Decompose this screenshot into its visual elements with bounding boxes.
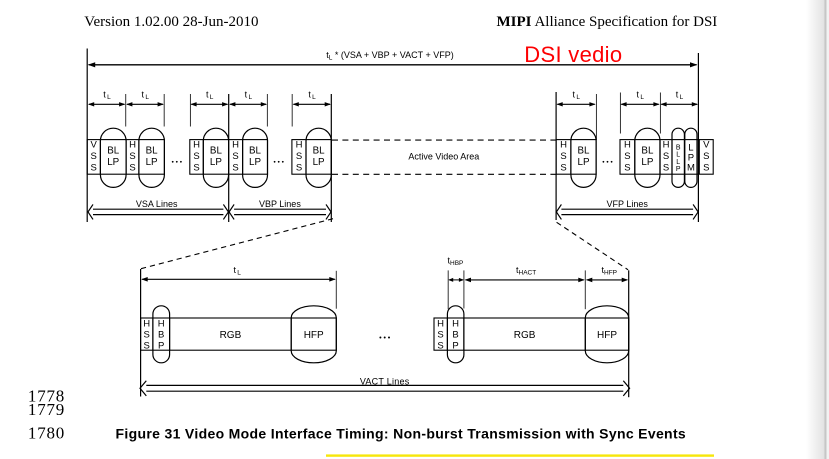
svg-text:LP: LP [146, 157, 158, 168]
svg-text:S: S [560, 163, 566, 174]
svg-text:V: V [91, 140, 98, 151]
svg-text:t: t [573, 90, 576, 100]
svg-text:t: t [103, 90, 106, 100]
svg-text:S: S [193, 163, 199, 174]
svg-text:S: S [232, 151, 238, 162]
svg-text:H: H [193, 140, 200, 151]
svg-text:S: S [91, 163, 97, 174]
svg-text:H: H [296, 140, 303, 151]
svg-text:L: L [145, 94, 149, 101]
svg-text:M: M [687, 163, 695, 174]
svg-text:L: L [576, 94, 580, 101]
svg-text:B: B [676, 144, 681, 151]
svg-text:LP: LP [313, 157, 325, 168]
svg-text:S: S [703, 163, 709, 174]
svg-text:t: t [206, 90, 209, 100]
svg-text:BL: BL [578, 145, 591, 156]
svg-text:H: H [452, 319, 459, 330]
svg-text:VSA Lines: VSA Lines [136, 199, 178, 209]
svg-text:S: S [703, 151, 709, 162]
svg-text:BL: BL [107, 145, 120, 156]
svg-text:H: H [158, 319, 165, 330]
svg-text:S: S [560, 151, 566, 162]
svg-text:LP: LP [578, 157, 590, 168]
svg-text:P: P [676, 166, 681, 173]
svg-text:L: L [680, 94, 684, 101]
svg-text:S: S [663, 163, 669, 174]
svg-text:t: t [245, 90, 248, 100]
svg-text:RGB: RGB [220, 330, 242, 341]
svg-text:L: L [107, 94, 111, 101]
svg-text:BL: BL [313, 145, 326, 156]
svg-text:Active Video Area: Active Video Area [408, 151, 479, 161]
svg-text:HFP: HFP [304, 330, 324, 341]
svg-text:B: B [158, 329, 164, 340]
svg-text:BL: BL [641, 145, 654, 156]
svg-text:VBP Lines: VBP Lines [259, 199, 301, 209]
svg-text:L: L [676, 152, 680, 159]
svg-text:t: t [676, 90, 679, 100]
svg-text:P: P [452, 340, 458, 351]
svg-text:LP: LP [107, 157, 119, 168]
svg-text:P: P [158, 340, 164, 351]
svg-text:H: H [232, 140, 239, 151]
svg-text:H: H [143, 319, 150, 330]
svg-text:S: S [624, 163, 630, 174]
svg-text:tL * (VSA + VBP + VACT + VFP): tL * (VSA + VBP + VACT + VFP) [326, 50, 453, 62]
svg-text:S: S [624, 151, 630, 162]
svg-text:LP: LP [249, 157, 261, 168]
svg-text:L: L [237, 270, 241, 277]
svg-text:BL: BL [249, 145, 262, 156]
svg-text:H: H [624, 140, 631, 151]
svg-text:BL: BL [210, 145, 223, 156]
svg-text:t: t [233, 265, 236, 275]
svg-text:L: L [249, 94, 253, 101]
svg-text:S: S [144, 329, 150, 340]
svg-text:tHBP: tHBP [448, 255, 464, 267]
svg-text:VFP Lines: VFP Lines [607, 199, 649, 209]
svg-text:H: H [129, 140, 136, 151]
svg-text:L: L [312, 94, 316, 101]
svg-text:S: S [129, 151, 135, 162]
svg-text:S: S [232, 163, 238, 174]
svg-text:Figure 31 Video Mode Interface: Figure 31 Video Mode Interface Timing: N… [116, 425, 687, 441]
svg-text:S: S [91, 151, 97, 162]
svg-text:S: S [129, 163, 135, 174]
svg-text:S: S [437, 340, 443, 351]
svg-text:H: H [560, 140, 567, 151]
svg-text:L: L [640, 94, 644, 101]
svg-text:HFP: HFP [597, 330, 617, 341]
svg-text:H: H [437, 319, 444, 330]
svg-text:L: L [210, 94, 214, 101]
svg-text:tHFP: tHFP [602, 265, 618, 277]
svg-text:MIPI Alliance Specification fo: MIPI Alliance Specification for DSI [497, 14, 718, 30]
svg-text:DSI vedio: DSI vedio [524, 42, 622, 67]
svg-text:tHACT: tHACT [516, 265, 536, 277]
svg-text:LP: LP [210, 157, 222, 168]
svg-text:t: t [637, 90, 640, 100]
svg-text:S: S [437, 329, 443, 340]
svg-text:H: H [663, 140, 670, 151]
svg-text:BL: BL [146, 145, 159, 156]
svg-text:1780: 1780 [28, 424, 65, 443]
svg-text:V: V [703, 140, 710, 151]
svg-text:LP: LP [641, 157, 653, 168]
svg-text:t: t [142, 90, 145, 100]
svg-text:1779: 1779 [28, 400, 65, 419]
svg-text:S: S [296, 151, 302, 162]
svg-text:S: S [193, 151, 199, 162]
svg-text:B: B [452, 329, 458, 340]
svg-text:t: t [308, 90, 311, 100]
svg-text:L: L [676, 159, 680, 166]
svg-text:RGB: RGB [514, 330, 536, 341]
svg-text:S: S [663, 151, 669, 162]
svg-text:S: S [296, 163, 302, 174]
svg-text:Version 1.02.00 28-Jun-2010: Version 1.02.00 28-Jun-2010 [84, 14, 258, 30]
svg-text:S: S [144, 340, 150, 351]
